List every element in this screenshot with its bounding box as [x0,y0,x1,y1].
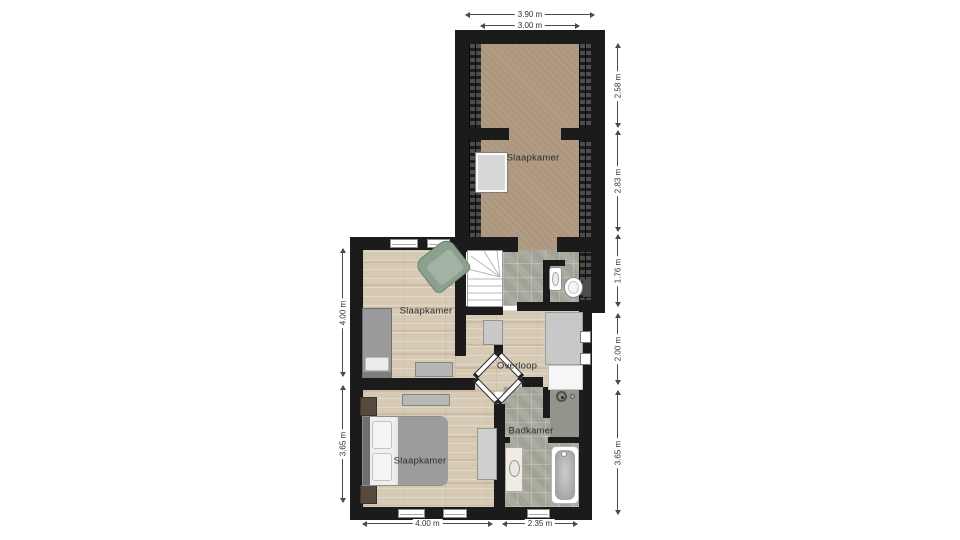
window-bathroom [527,509,550,518]
room-label-middle-bedroom: Slaapkamer [400,306,453,317]
wardrobe [477,428,497,480]
bathtub-basin [555,450,575,500]
dim-top-300: 3.00 m [480,20,580,32]
room-label-landing: Overloop [497,361,537,372]
wall-bathroom-entry [522,377,543,387]
wall-attic-right [591,30,605,313]
nightstand-bottom [360,485,377,504]
dim-bottom-235: 2.35 m [502,518,578,530]
staircase-up [467,250,503,307]
single-bed-footboard [363,372,391,378]
wall-shower-left [543,387,550,418]
double-bed-pillow-2 [372,453,392,481]
dim-left-400: 4.00 m [337,248,349,377]
wall-shower-bottom-right [548,437,579,443]
double-bed-duvet [395,417,448,485]
room-label-bathroom: Badkamer [509,426,554,437]
wall-attic-left [455,30,469,252]
stair-void-down [545,312,583,365]
shower-drain-icon [570,394,575,399]
wall-attic-stub-left [469,128,509,140]
wall-attic-bottom-right [557,237,605,252]
bathtub [551,446,579,504]
dim-bottom-400: 4.00 m [362,518,493,530]
dim-right-365: 3.65 m [612,390,624,515]
bathtub-faucet-icon [561,451,567,457]
wall-attic-top [455,30,605,44]
window-bottom-bedroom-1 [398,509,425,518]
dresser-middle-bedroom [415,362,453,377]
window-middle-bedroom-1 [390,239,418,248]
double-bed [362,416,448,486]
dim-left-365: 3.65 m [337,385,349,503]
bathroom-vanity [505,447,523,492]
wall-under-stair [455,306,503,315]
stair-landing [548,365,583,390]
wall-shelf-1 [580,331,591,343]
toilet-tank [583,279,591,297]
wall-toilet-top [543,260,565,266]
attic-sloped-wall-left [469,44,481,237]
double-bed-pillow-1 [372,421,392,449]
vanity-basin [509,460,520,477]
single-bed-pillow [365,357,389,371]
nightstand-top [360,397,377,416]
window-bottom-bedroom-2 [443,509,467,518]
dim-right-176: 1.76 m [612,234,624,307]
dim-right-283: 2.83 m [612,130,624,232]
dresser-bottom-bedroom [402,394,450,406]
landing-radiator [483,320,503,345]
toilet-sink [549,267,562,291]
wall-shelf-2 [580,353,591,365]
wall-step [579,300,605,312]
single-bed [362,308,392,378]
shower-head-icon [556,391,567,402]
attic-bedroom-floor [469,44,591,237]
wall-bedroom-divider [350,378,475,390]
toilet-bowl [564,277,583,298]
room-label-attic-bedroom: Slaapkamer [507,153,560,164]
attic-sloped-wall-right [579,44,591,237]
attic-cabinet [476,153,507,192]
double-bed-headboard [363,417,370,485]
dim-right-200: 2.00 m [612,313,624,385]
dim-right-258: 2.58 m [612,43,624,128]
wall-attic-stub-right [561,128,605,140]
room-label-bottom-bedroom: Slaapkamer [394,456,447,467]
floorplan-canvas: Slaapkamer Slaapkamer Slaapkamer Overloo… [0,0,960,540]
toilet-sink-basin [552,272,559,286]
